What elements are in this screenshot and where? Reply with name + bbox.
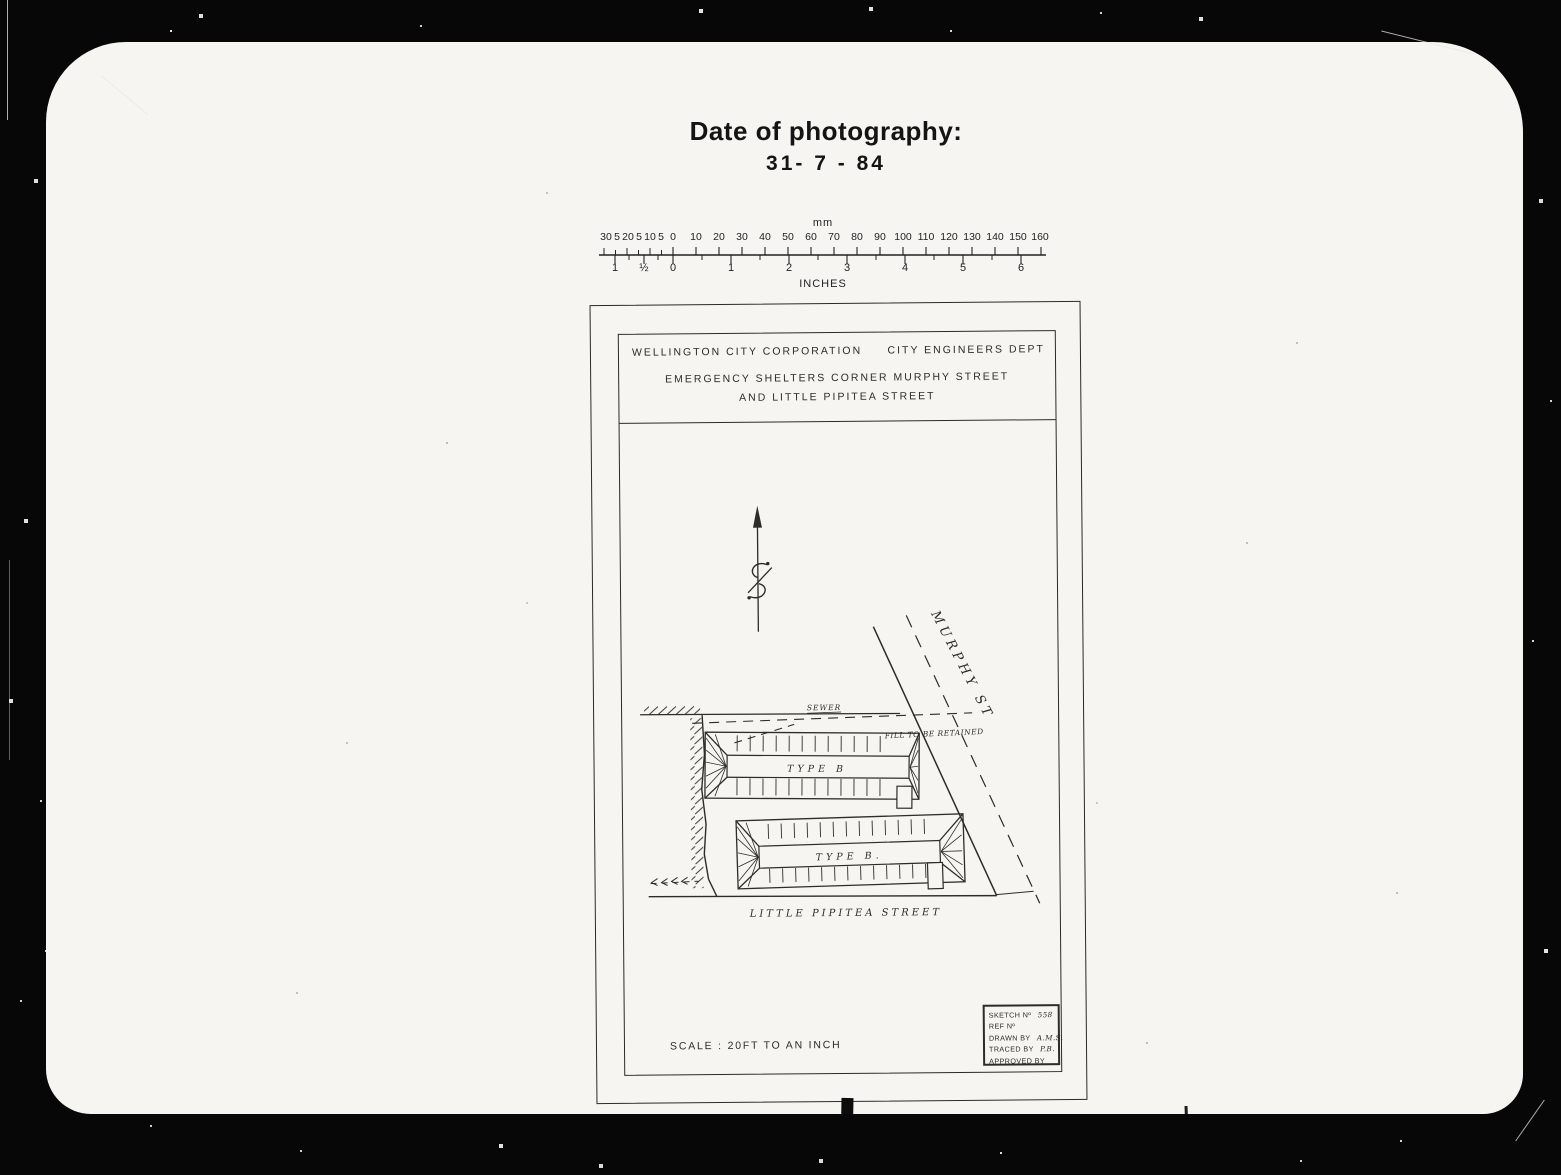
building-type-b-upper: TYPE B xyxy=(705,732,919,808)
inch-tick-label: ½ xyxy=(639,262,648,274)
building2-label: TYPE B. xyxy=(816,850,883,863)
mm-tick-label: 5 xyxy=(614,231,620,243)
film-scratch xyxy=(9,560,10,760)
mm-tick-label: 30 xyxy=(736,231,748,243)
fill-note-label: FILL TO BE RETAINED xyxy=(884,727,984,740)
mm-tick-label: 100 xyxy=(894,231,912,243)
drawn-by-label: DRAWN BY xyxy=(989,1033,1031,1042)
inch-tick-label: 2 xyxy=(786,262,792,274)
approved-by-row: APPROVED BY xyxy=(989,1055,1058,1067)
mm-tick-label: 150 xyxy=(1009,231,1027,243)
inch-tick-label: 4 xyxy=(902,262,908,274)
inch-tick-label: 1 xyxy=(728,262,734,274)
film-scratch xyxy=(1515,1100,1544,1142)
film-border-specks xyxy=(0,0,2,2)
site-plan-drawing: SEWER TYPE B xyxy=(619,331,1061,1075)
ref-number-row: REF Nº xyxy=(989,1020,1058,1032)
slope-ticks xyxy=(651,877,699,885)
north-arrow xyxy=(747,506,773,632)
little-pipitea-street-label: LITTLE PIPITEA STREET xyxy=(749,907,942,920)
sketch-number-label: SKETCH Nº xyxy=(989,1010,1032,1019)
caption-title: Date of photography: xyxy=(646,116,1006,147)
retaining-wall-hatching xyxy=(690,718,703,888)
murphy-street-label: MURPHY ST xyxy=(927,608,996,723)
inch-tick-label: 6 xyxy=(1018,262,1024,274)
photo-area: Date of photography: 31- 7 - 84 mm 30 5 … xyxy=(46,42,1523,1114)
inch-tick-label: 3 xyxy=(844,262,850,274)
mm-tick-label: 20 xyxy=(713,231,725,243)
sewer-label: SEWER xyxy=(807,703,842,712)
ref-number-label: REF Nº xyxy=(989,1022,1016,1031)
mm-tick-label: 5 xyxy=(658,231,664,243)
mm-tick-label: 5 xyxy=(636,231,642,243)
registration-tick xyxy=(1185,1106,1189,1114)
sketch-sheet: WELLINGTON CITY CORPORATION CITY ENGINEE… xyxy=(590,301,1088,1104)
drawn-by-value: A.M.S. xyxy=(1037,1033,1064,1042)
photo-caption: Date of photography: 31- 7 - 84 xyxy=(646,116,1006,176)
ruler-inches-label: INCHES xyxy=(799,278,847,290)
scale-ruler: mm 30 5 20 5 10 5 0 10 20 30 40 50 60 70… xyxy=(591,218,1061,296)
boundary-hatching xyxy=(644,705,700,714)
mm-tick-label: 80 xyxy=(851,231,863,243)
building-type-b-lower: TYPE B. xyxy=(736,814,965,895)
inch-tick-label: 5 xyxy=(960,262,966,274)
mm-tick-label: 130 xyxy=(963,231,981,243)
mm-tick-label: 0 xyxy=(670,231,676,243)
mm-tick-label: 20 xyxy=(622,231,634,243)
mm-tick-label: 60 xyxy=(805,231,817,243)
mm-tick-label: 10 xyxy=(644,231,656,243)
caption-date: 31- 7 - 84 xyxy=(646,152,1006,176)
mm-tick-label: 70 xyxy=(828,231,840,243)
inch-tick-label: 0 xyxy=(670,262,676,274)
mm-tick-label: 140 xyxy=(986,231,1004,243)
sketch-number-value: 558 xyxy=(1038,1010,1053,1019)
mm-tick-label: 30 xyxy=(600,231,612,243)
clip-mark xyxy=(840,1098,853,1114)
traced-by-value: P.B. xyxy=(1040,1044,1055,1053)
drawing-frame: WELLINGTON CITY CORPORATION CITY ENGINEE… xyxy=(618,330,1062,1076)
mm-tick-label: 10 xyxy=(690,231,702,243)
traced-by-row: TRACED BY P.B. xyxy=(989,1043,1058,1055)
drawn-by-row: DRAWN BY A.M.S. xyxy=(989,1032,1058,1044)
mm-tick-label: 120 xyxy=(940,231,958,243)
building1-label: TYPE B xyxy=(787,764,847,775)
mm-tick-label: 160 xyxy=(1031,231,1049,243)
inch-tick-label: 1 xyxy=(612,262,618,274)
mm-tick-label: 110 xyxy=(918,231,935,243)
film-scratch xyxy=(7,0,8,120)
paper-dust-specks xyxy=(46,42,48,44)
scale-note: SCALE : 20FT TO AN INCH xyxy=(670,1039,842,1052)
mm-tick-label: 90 xyxy=(874,231,886,243)
mm-tick-label: 50 xyxy=(782,231,794,243)
street-edge-line xyxy=(649,894,997,899)
approved-by-label: APPROVED BY xyxy=(989,1056,1045,1065)
mm-tick-label: 40 xyxy=(759,231,771,243)
title-block: SKETCH Nº 558 REF Nº DRAWN BY A.M.S. TRA… xyxy=(983,1004,1061,1066)
sketch-number-row: SKETCH Nº 558 xyxy=(989,1009,1058,1021)
traced-by-label: TRACED BY xyxy=(989,1044,1034,1053)
